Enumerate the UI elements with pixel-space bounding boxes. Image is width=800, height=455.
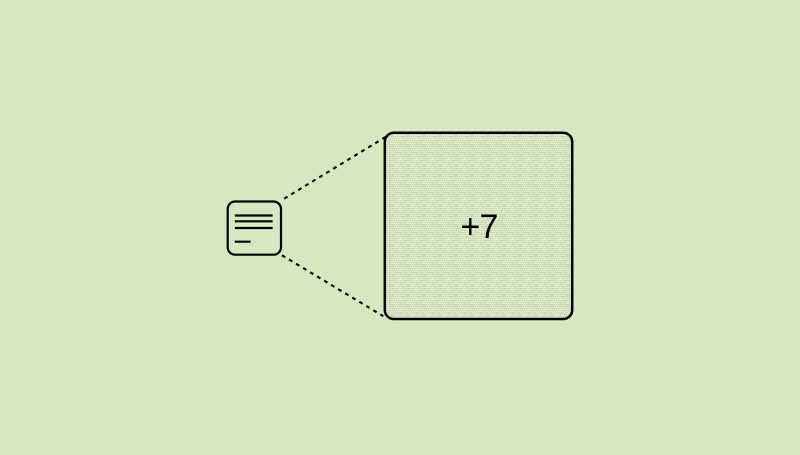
svg-text:+7: +7 [460, 208, 497, 246]
